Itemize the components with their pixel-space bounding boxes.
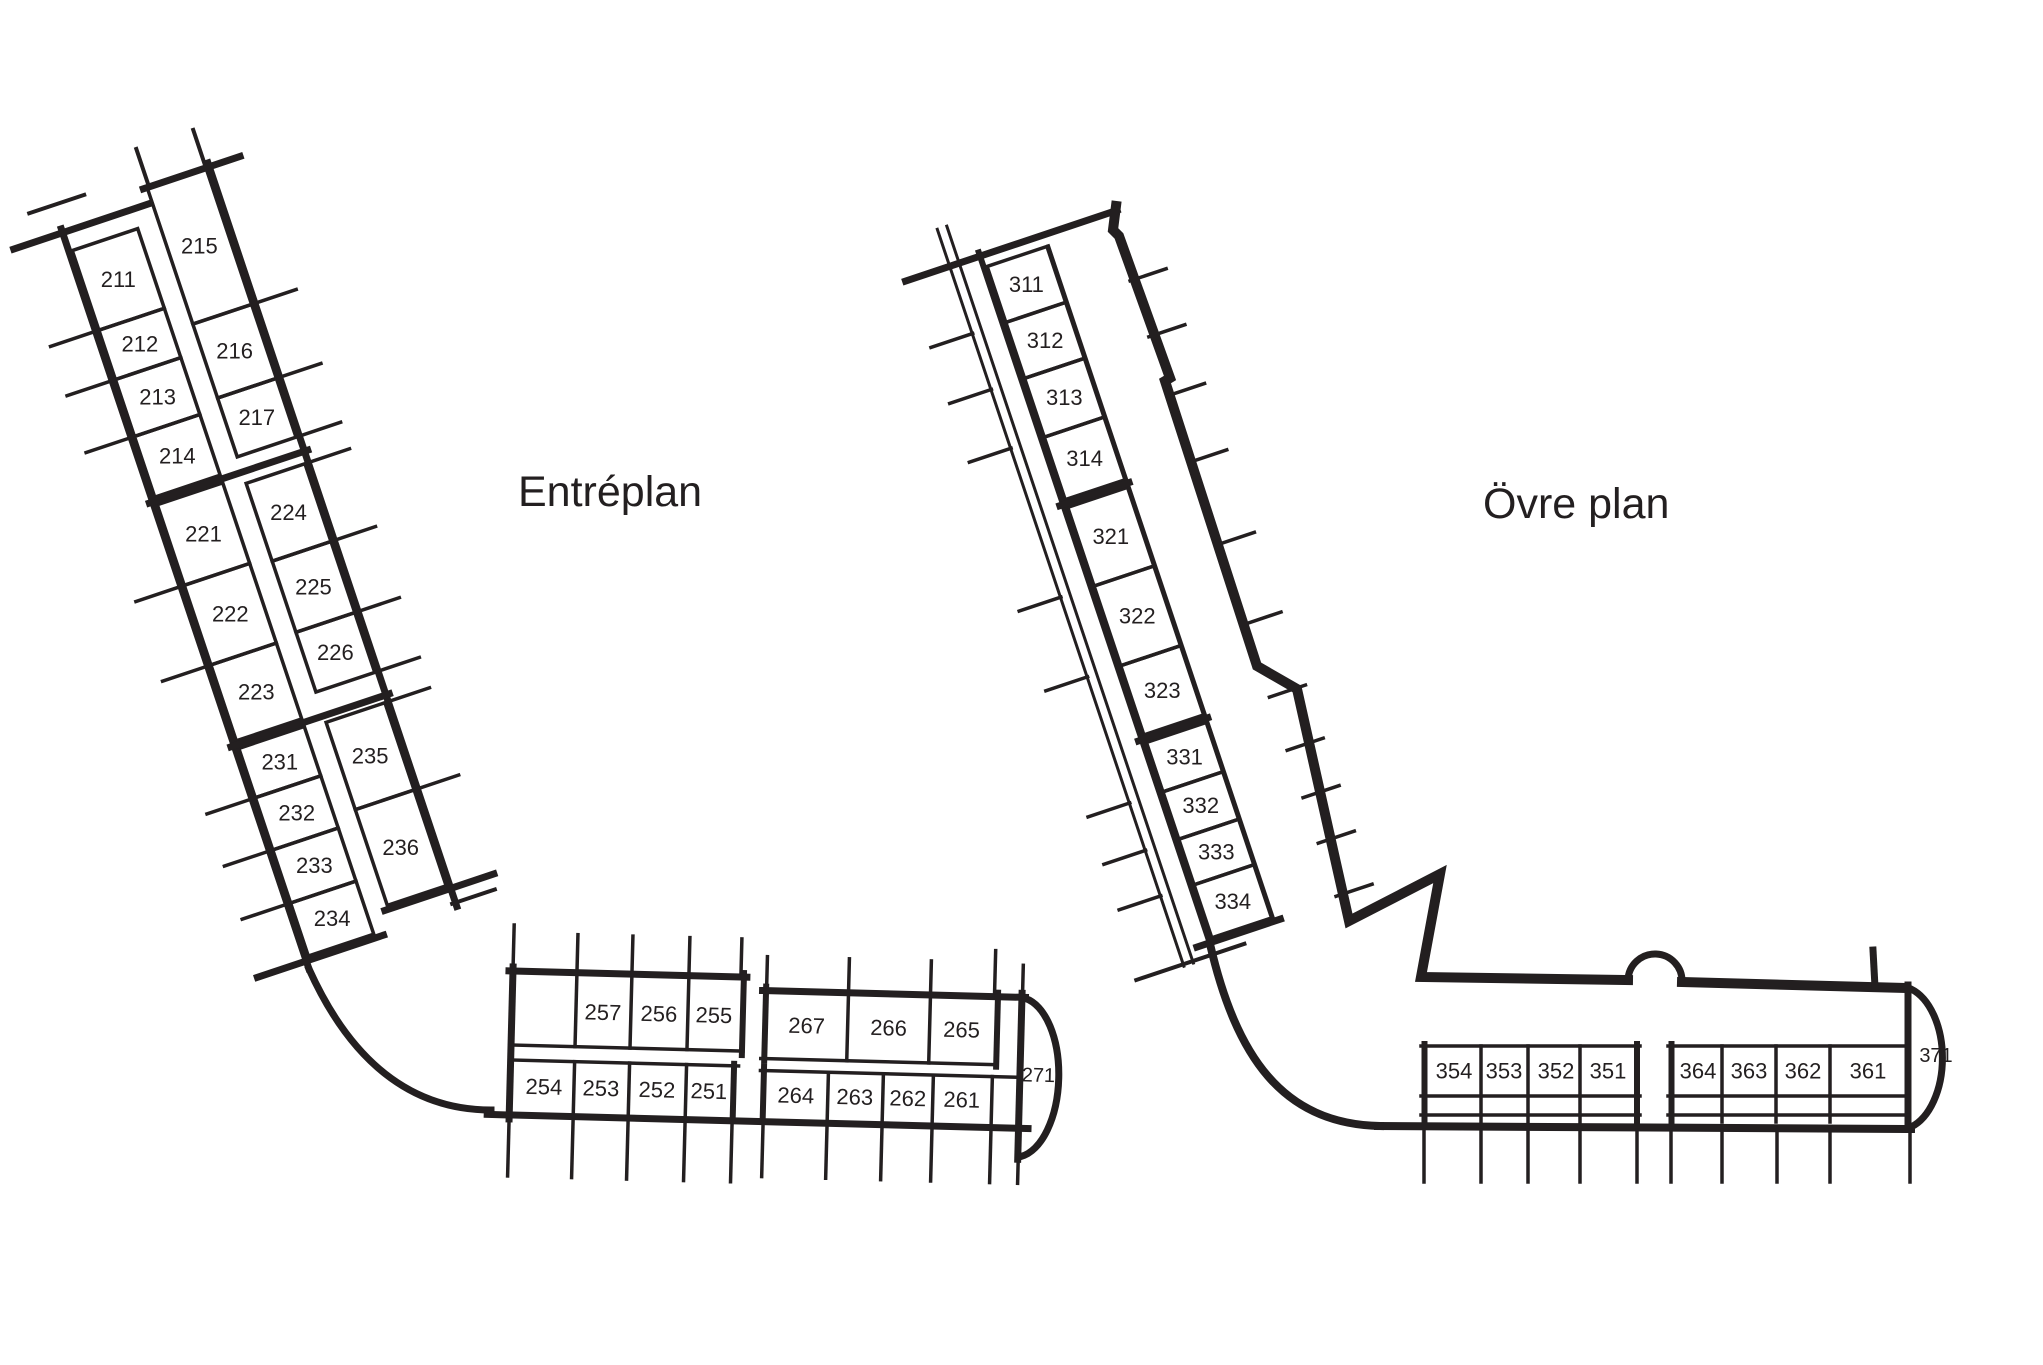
- room-label-354: 354: [1436, 1059, 1473, 1084]
- balcony-tick: [136, 586, 182, 601]
- west-wall: [979, 252, 1211, 946]
- tick: [627, 1122, 628, 1179]
- balcony-tick: [254, 289, 296, 303]
- block-wall: [742, 973, 744, 1055]
- cell-divider: [932, 1077, 933, 1122]
- room-label-222: 222: [212, 602, 249, 627]
- balcony-tick: [1104, 850, 1146, 864]
- tick: [767, 957, 768, 987]
- room-label-224: 224: [270, 500, 307, 525]
- balcony-tick: [1318, 831, 1354, 843]
- cell-divider: [827, 1074, 828, 1119]
- room-label-311: 311: [1009, 272, 1044, 297]
- base-top-wall: [509, 971, 747, 977]
- block-wall: [763, 1067, 764, 1122]
- room-label-216: 216: [216, 339, 253, 364]
- room-label-314: 314: [1066, 446, 1103, 471]
- tick: [762, 1126, 763, 1177]
- balcony-tick: [163, 666, 209, 681]
- room-label-271: 271: [1021, 1064, 1055, 1087]
- top-stub: [29, 195, 84, 213]
- room-label-312: 312: [1027, 328, 1064, 353]
- balcony-tick: [207, 799, 253, 814]
- room-label-212: 212: [122, 331, 159, 356]
- bottom-west-wall: [257, 935, 383, 977]
- end-tick: [452, 889, 495, 903]
- door-arc: [1628, 954, 1682, 982]
- tick: [881, 1129, 882, 1180]
- west-outer-wall: [61, 229, 308, 969]
- balcony-tick: [67, 380, 113, 395]
- room-label-251: 251: [690, 1078, 727, 1104]
- floor-plan-page: Entréplan Övre plan 21121221321422122222…: [0, 0, 2043, 1365]
- tick: [731, 1125, 732, 1182]
- tick: [577, 935, 578, 969]
- tick: [508, 1119, 509, 1176]
- room-label-363: 363: [1731, 1059, 1768, 1084]
- balcony-tick: [969, 448, 1011, 462]
- room-label-236: 236: [382, 835, 419, 860]
- outer-wall: [1113, 206, 1628, 980]
- room-label-221: 221: [185, 522, 222, 547]
- balcony-tick: [299, 422, 341, 436]
- tick: [931, 1130, 932, 1181]
- room-label-255: 255: [695, 1002, 732, 1028]
- balcony-tick: [224, 851, 270, 866]
- balcony-tick: [950, 389, 992, 403]
- room-label-262: 262: [889, 1085, 926, 1111]
- entreplan-plan: 2112122132142212222232312322332342152162…: [14, 130, 1063, 1190]
- room-label-257: 257: [584, 999, 621, 1025]
- base-bottom-wall: [487, 1114, 1028, 1128]
- room-label-323: 323: [1144, 678, 1181, 703]
- room-label-215: 215: [181, 233, 218, 258]
- tick: [513, 925, 514, 967]
- room-label-332: 332: [1182, 793, 1219, 818]
- group-wall: [1060, 483, 1129, 506]
- balcony-tick: [1218, 532, 1254, 544]
- room-label-233: 233: [296, 853, 333, 878]
- balcony-tick: [279, 363, 321, 377]
- cell-divider: [685, 1065, 686, 1116]
- room-label-321: 321: [1092, 524, 1129, 549]
- east-outer-wall: [208, 163, 457, 906]
- top-stub: [136, 149, 149, 187]
- tick: [931, 961, 932, 991]
- room-label-234: 234: [314, 906, 351, 931]
- balcony-tick: [1191, 450, 1227, 462]
- room-label-252: 252: [638, 1077, 675, 1103]
- room-label-225: 225: [295, 574, 332, 599]
- room-label-362: 362: [1785, 1059, 1822, 1084]
- room-label-235: 235: [352, 744, 389, 769]
- top-east-wall: [143, 156, 240, 188]
- room-label-265: 265: [943, 1017, 980, 1043]
- room-label-353: 353: [1486, 1059, 1523, 1084]
- room-label-253: 253: [582, 1075, 619, 1101]
- balcony-tick: [378, 657, 420, 671]
- base-end-wall: [509, 967, 513, 1119]
- room-label-264: 264: [777, 1082, 814, 1108]
- tick: [689, 938, 690, 972]
- cell-divider: [575, 977, 577, 1047]
- group-wall: [1139, 718, 1208, 741]
- block-wall: [764, 987, 766, 1061]
- cell-divider: [628, 1063, 629, 1114]
- top-wall: [906, 210, 1117, 281]
- cell-divider: [929, 999, 931, 1063]
- room-label-361: 361: [1850, 1059, 1887, 1084]
- room-label-232: 232: [278, 800, 315, 825]
- block-wall: [996, 993, 998, 1067]
- room-label-267: 267: [788, 1013, 825, 1039]
- end-tick: [1136, 944, 1244, 980]
- curved-outer-wall: [1210, 944, 1380, 1126]
- balcony-tick: [242, 904, 288, 919]
- balcony-tick: [1046, 677, 1088, 691]
- entreplan-base: 2712572562552672662652542532522512642632…: [486, 924, 1063, 1190]
- balcony-tick: [1019, 597, 1061, 611]
- room-label-333: 333: [1198, 839, 1235, 864]
- tick: [632, 936, 633, 970]
- room-label-364: 364: [1680, 1059, 1717, 1084]
- room-label-334: 334: [1214, 889, 1251, 914]
- cell-divider: [630, 978, 632, 1048]
- balcony-tick: [358, 598, 400, 612]
- balcony-tick: [51, 331, 97, 346]
- row-divider: [760, 1071, 1020, 1078]
- floor-plan-drawing: 2112122132142212222232312322332342152162…: [0, 0, 2043, 1365]
- room-label-211: 211: [101, 267, 136, 292]
- room-label-254: 254: [525, 1074, 562, 1100]
- base-top-wall: [763, 991, 1026, 998]
- room-label-371: 371: [1919, 1045, 1952, 1067]
- room-label-231: 231: [261, 750, 298, 775]
- tick: [1023, 965, 1024, 993]
- cell-divider: [573, 1062, 574, 1113]
- curved-outer-wall: [309, 969, 491, 1110]
- room-label-352: 352: [1538, 1059, 1575, 1084]
- tick: [684, 1124, 685, 1181]
- row-divider: [511, 1060, 739, 1066]
- room-label-266: 266: [870, 1015, 907, 1041]
- room-label-226: 226: [317, 640, 354, 665]
- cell-divider: [687, 980, 689, 1050]
- room-label-217: 217: [238, 405, 275, 430]
- balcony-tick: [1088, 803, 1130, 817]
- room-label-331: 331: [1166, 745, 1203, 770]
- balcony-tick: [417, 775, 459, 789]
- room-label-313: 313: [1046, 385, 1083, 410]
- tick: [849, 959, 850, 989]
- tick: [572, 1121, 573, 1178]
- room-label-213: 213: [139, 385, 176, 410]
- cell-divider: [991, 1077, 992, 1124]
- room-label-261: 261: [943, 1087, 980, 1113]
- tick: [826, 1127, 827, 1178]
- room-label-256: 256: [640, 1001, 677, 1027]
- row-divider: [761, 1059, 997, 1065]
- cell-divider: [847, 997, 849, 1061]
- balcony-tick: [931, 333, 973, 347]
- balcony-tick: [1119, 896, 1161, 910]
- room-label-322: 322: [1119, 603, 1156, 628]
- tick: [995, 951, 996, 993]
- ovre-plan-plan: 3113123133143213223233313323333343713543…: [906, 206, 1953, 1182]
- room-label-214: 214: [159, 443, 196, 468]
- room-label-223: 223: [238, 679, 275, 704]
- room-label-263: 263: [836, 1084, 873, 1110]
- balcony-tick: [334, 527, 376, 541]
- balcony-tick: [1245, 612, 1281, 624]
- balcony-tick: [86, 437, 132, 452]
- tick: [1873, 950, 1875, 987]
- tick: [990, 1132, 991, 1183]
- room-label-351: 351: [1590, 1059, 1627, 1084]
- top-stub: [193, 130, 206, 168]
- cell-divider: [882, 1076, 883, 1121]
- balcony-tick: [308, 449, 350, 463]
- bottom-east-wall: [385, 874, 494, 910]
- balcony-tick: [388, 688, 430, 702]
- tick: [741, 939, 742, 973]
- block-wall: [733, 1064, 734, 1121]
